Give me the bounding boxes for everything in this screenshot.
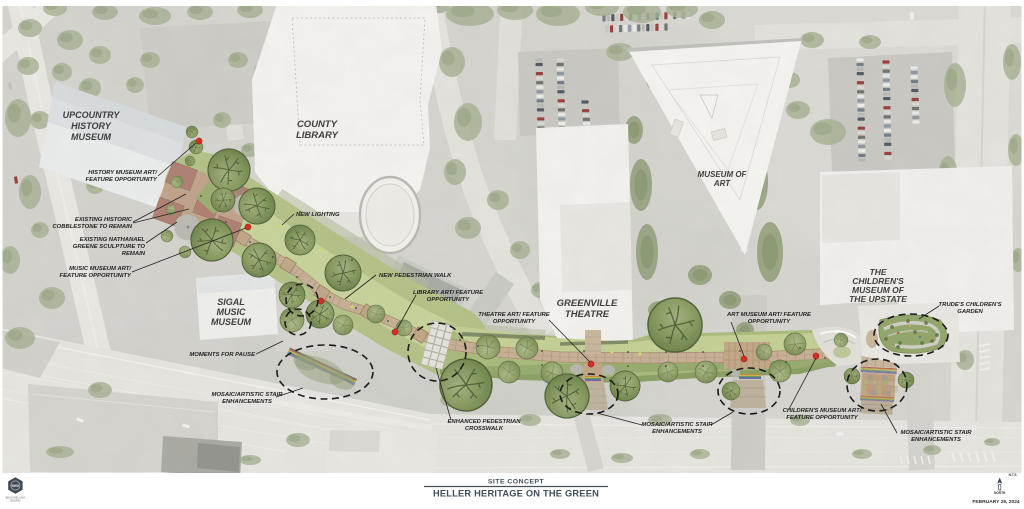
svg-text:HELLER HERITAGE ON THE GREEN: HELLER HERITAGE ON THE GREEN [433, 489, 599, 499]
svg-text:FEBRUARY 29, 2024: FEBRUARY 29, 2024 [972, 499, 1020, 505]
svg-text:N.T.S.: N.T.S. [1009, 473, 1018, 477]
svg-text:DESIGN: DESIGN [10, 499, 20, 503]
svg-text:BWD: BWD [12, 484, 20, 488]
svg-text:NORTH: NORTH [994, 491, 1006, 495]
svg-text:SITE CONCEPT: SITE CONCEPT [488, 479, 545, 486]
